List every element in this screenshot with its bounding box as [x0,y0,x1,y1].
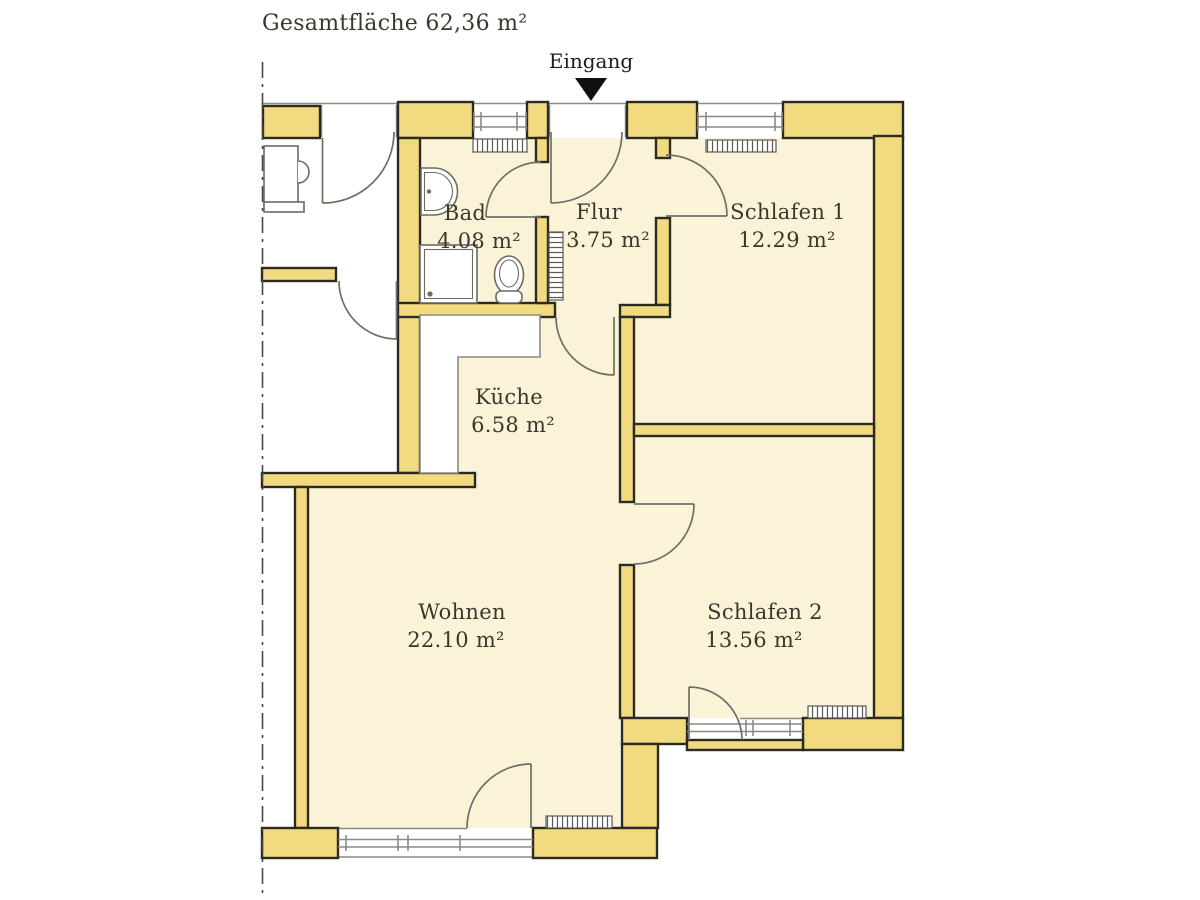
wall-top [627,102,697,138]
wall-bottom-right-block [803,718,903,750]
floor-plan-page: Gesamtfläche 62,36 m² Eingang Bad 4.08 m… [0,0,1200,900]
room-label-schlafen2: Schlafen 2 [707,600,823,624]
wall-right-exterior [874,136,903,718]
room-label-flur: Flur [576,200,622,224]
wall-bottom-left-block [262,828,338,858]
room-label-wohnen: Wohnen [418,600,506,624]
room-area-wohnen: 22.10 m² [407,628,505,652]
wall-schlafen2-sill [687,740,803,750]
room-area-kueche: 6.58 m² [471,413,555,437]
floor-plan-svg [0,0,1200,900]
bad-window [473,112,527,131]
entrance-arrow-icon [575,78,607,101]
radiator [473,139,527,152]
schlafen2-floor [634,436,874,718]
wall-stairwell-mid [262,268,336,281]
wohnen-floor [308,487,620,828]
schlafen1-doorway-floor [656,158,670,218]
room-area-bad: 4.08 m² [437,229,521,253]
radiator [549,232,563,300]
radiator [808,706,866,718]
wall-top-pillar [527,102,548,138]
toilet-icon [495,256,524,303]
stairwell-lower-door-arc [339,281,397,339]
wohnen-window [338,835,533,851]
schlafen1-window [697,112,783,131]
bad-doorway-floor [536,162,548,217]
stairwell-fixture-icon [264,146,309,212]
flur-kueche-doorway-floor [555,303,620,317]
wall-top [398,102,473,138]
schlafen2-doorway-floor [620,502,634,565]
wall-wohnen-left [295,487,308,828]
wall-schlafen-divider [634,424,874,436]
room-label-bad: Bad [444,201,486,225]
entrance-label: Eingang [549,49,633,73]
radiator [706,140,776,152]
room-area-flur: 3.75 m² [566,228,650,252]
room-label-kueche: Küche [475,385,543,409]
wall-mid-divider-lower [620,565,634,718]
radiator [546,816,612,828]
total-area-label: Gesamtfläche 62,36 m² [262,11,527,36]
wall-jog [620,305,670,317]
stairwell-top-door-arc [323,132,395,203]
wall-flur-schlafen1 [656,218,670,305]
room-label-schlafen1: Schlafen 1 [730,200,846,224]
wall-schlafen2-corner-block [622,718,687,744]
room-area-schlafen1: 12.29 m² [738,228,836,252]
wall-mid-divider-upper [620,317,634,502]
wall-bottom-mid-block [533,828,657,858]
schlafen2-window [687,720,803,736]
wall-bad-flur [536,217,548,303]
wall-bad-flur-stub [536,138,548,162]
room-area-schlafen2: 13.56 m² [705,628,803,652]
wall-top-right [783,102,903,138]
wall-step [622,744,658,828]
wall-top-left-block [263,106,320,138]
wall-kueche-top-left [262,473,475,487]
shower-icon [420,245,477,303]
